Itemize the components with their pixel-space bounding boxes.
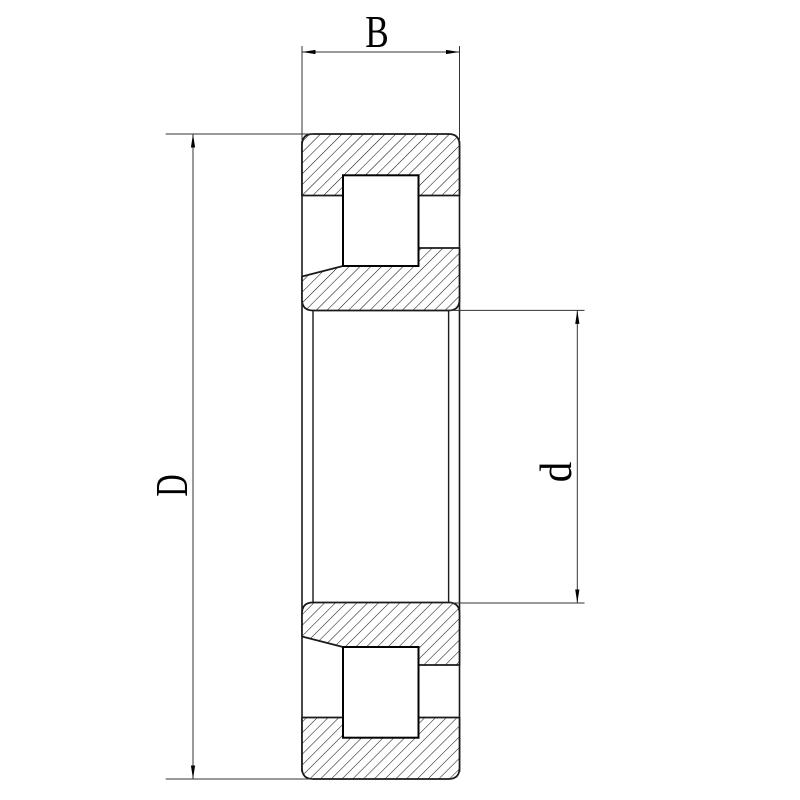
- svg-text:d: d: [531, 462, 582, 483]
- svg-text:D: D: [147, 474, 198, 496]
- svg-text:B: B: [365, 7, 388, 58]
